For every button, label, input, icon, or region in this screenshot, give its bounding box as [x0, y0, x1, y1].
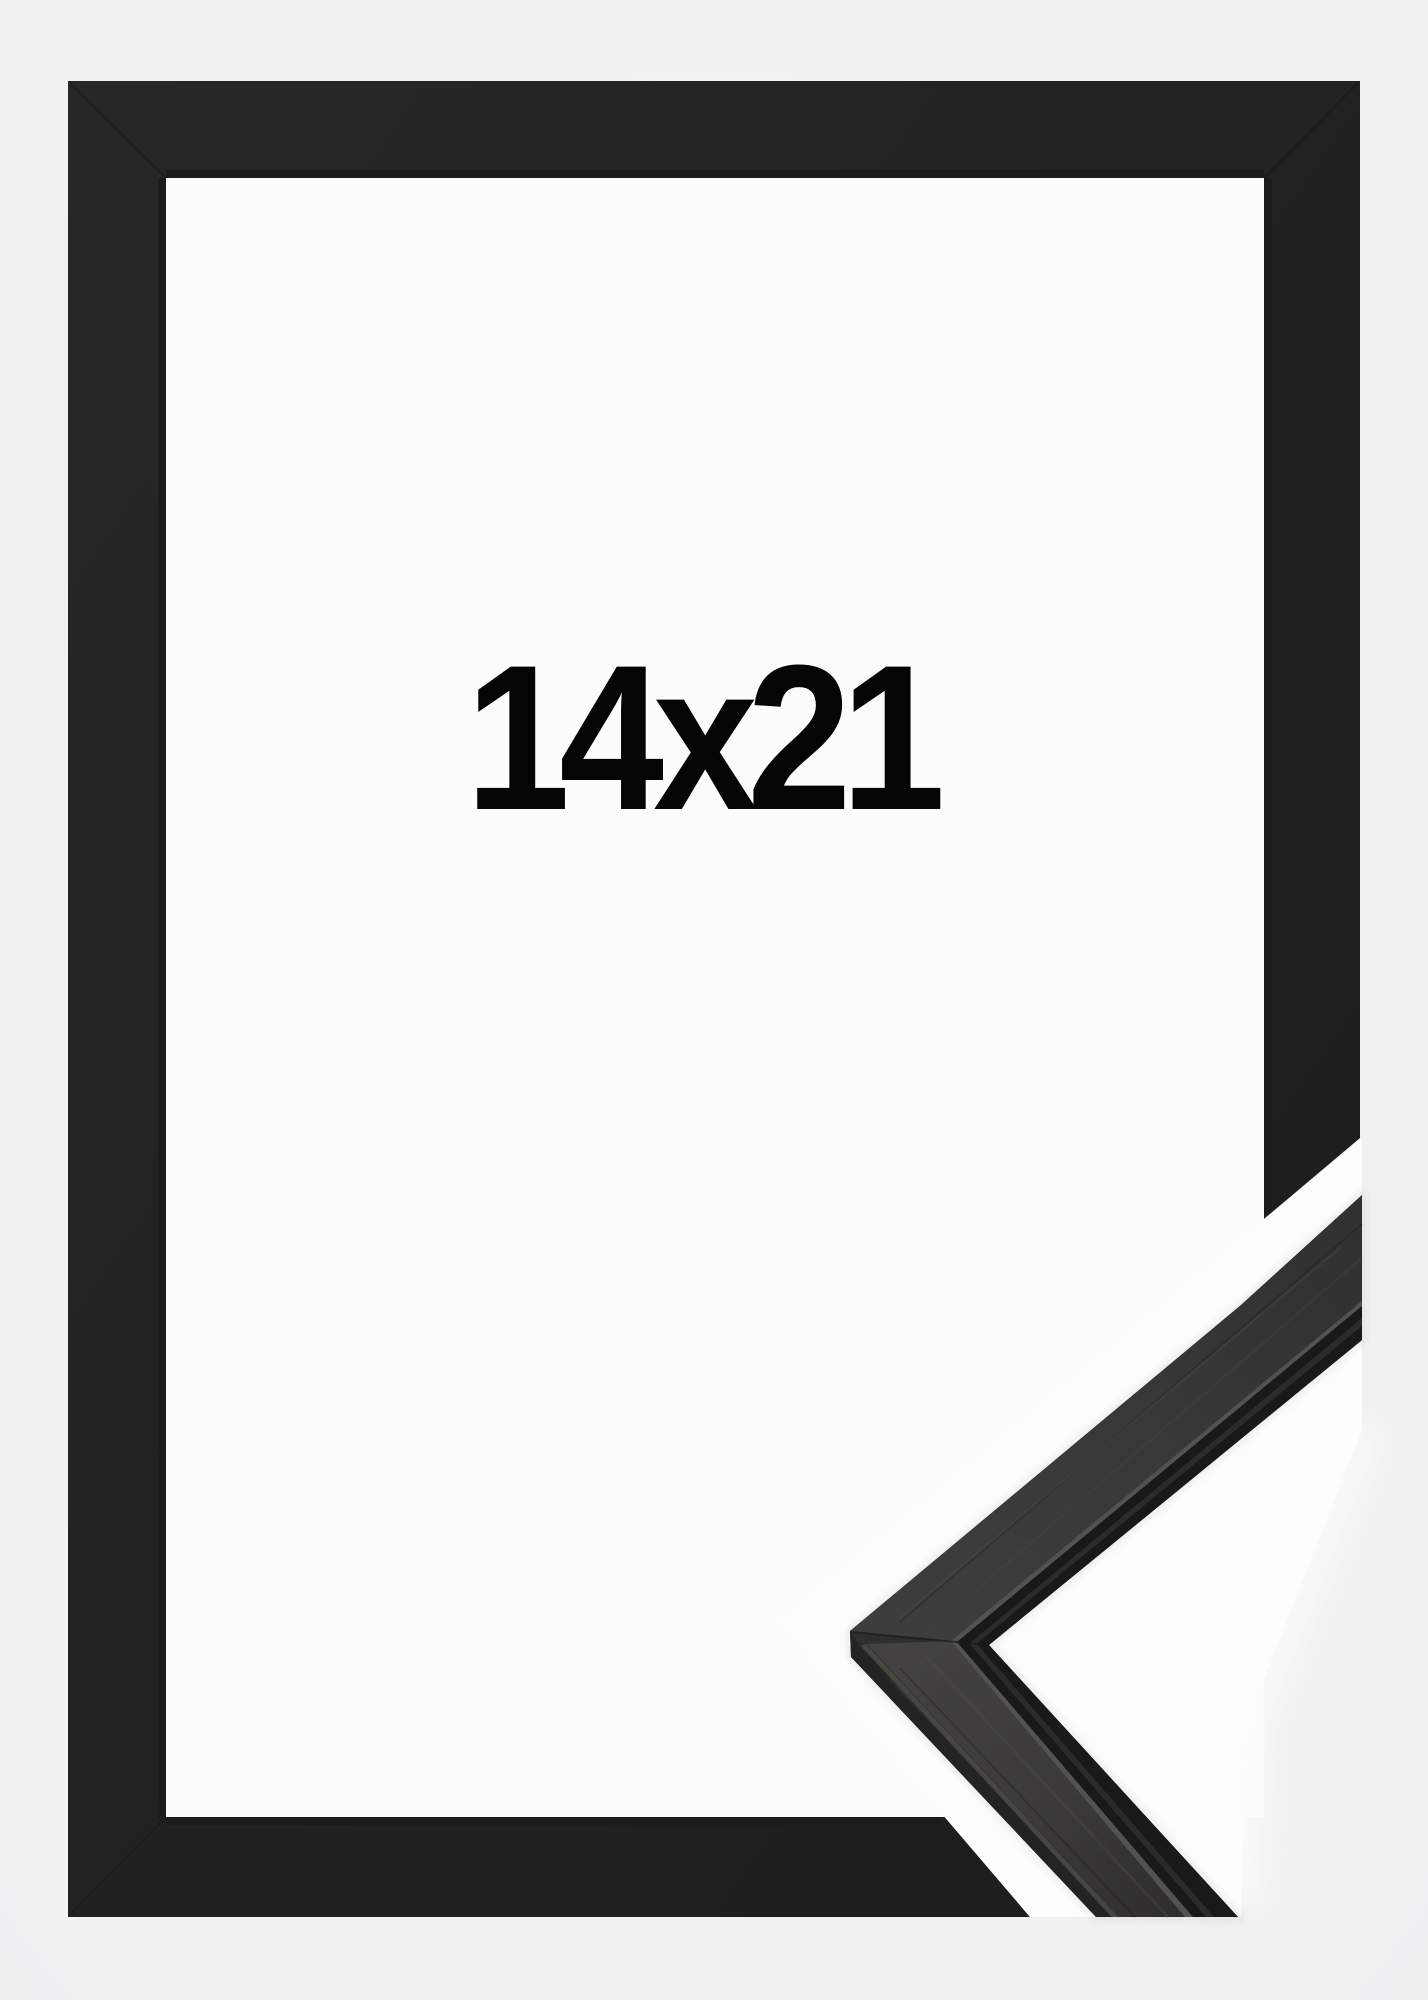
- svg-text:14x21: 14x21: [465, 622, 940, 853]
